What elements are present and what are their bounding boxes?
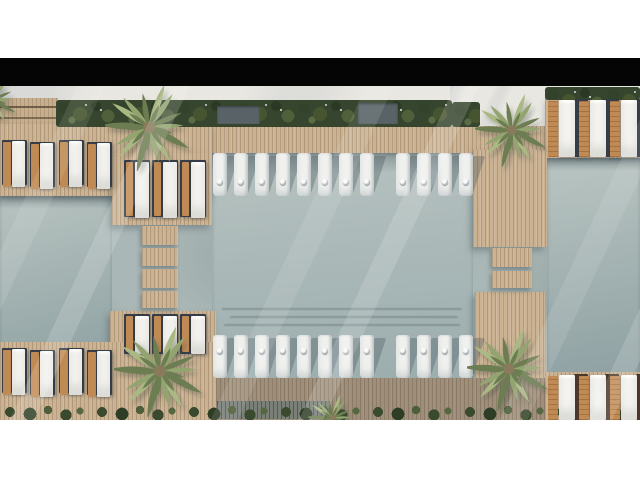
- drink-holder-ball: [421, 179, 427, 185]
- wood-chaise: [126, 316, 133, 352]
- cushion-chaise: [191, 316, 205, 354]
- in-pool-lounger: [396, 335, 410, 378]
- ripple-line: [224, 324, 460, 326]
- wood-chaise: [182, 162, 189, 216]
- walkway-segment: [492, 271, 532, 288]
- wood-chaise: [579, 101, 589, 157]
- drink-holder-ball: [259, 348, 265, 354]
- in-pool-lounger: [276, 153, 290, 196]
- cushion-chaise: [621, 375, 637, 420]
- drink-holder-ball: [343, 348, 349, 354]
- in-pool-lounger: [297, 335, 311, 378]
- in-pool-lounger: [213, 335, 227, 378]
- hedge-top-right: [545, 87, 640, 100]
- drink-holder-ball: [301, 348, 307, 354]
- cushion-chaise: [191, 162, 205, 218]
- cushion-chaise: [559, 375, 575, 420]
- cushion-chaise: [135, 162, 149, 218]
- bush-cluster-top: [452, 102, 480, 127]
- drink-holder-ball: [442, 348, 448, 354]
- drink-holder-ball: [322, 179, 328, 185]
- pool-render: [0, 86, 640, 420]
- wood-chaise: [126, 162, 133, 216]
- walkway-segment: [142, 269, 178, 288]
- wood-chaise: [579, 376, 589, 420]
- in-pool-lounger: [255, 153, 269, 196]
- in-pool-lounger: [360, 153, 374, 196]
- cushion-chaise: [69, 349, 82, 395]
- in-pool-lounger: [417, 335, 431, 378]
- drink-holder-ball: [442, 179, 448, 185]
- wood-chaise: [154, 316, 161, 352]
- wood-chaise: [88, 352, 96, 397]
- in-pool-lounger: [234, 335, 248, 378]
- drink-holder-ball: [259, 179, 265, 185]
- drink-holder-ball: [463, 348, 469, 354]
- cushion-chaise: [163, 316, 177, 354]
- wood-chaise: [60, 142, 68, 187]
- in-pool-lounger: [255, 335, 269, 378]
- cushion-chaise: [590, 100, 606, 157]
- drink-holder-ball: [217, 179, 223, 185]
- in-pool-lounger: [318, 153, 332, 196]
- walkway-segment: [142, 226, 178, 245]
- in-pool-lounger: [234, 153, 248, 196]
- drink-holder-ball: [463, 179, 469, 185]
- wood-chaise: [88, 144, 96, 189]
- drink-holder-ball: [400, 348, 406, 354]
- cushion-chaise: [12, 349, 25, 395]
- page-background: [0, 0, 640, 480]
- wood-chaise: [610, 101, 620, 157]
- in-pool-lounger: [459, 153, 473, 196]
- drink-holder-ball: [217, 348, 223, 354]
- pool-water-right: [547, 158, 640, 373]
- pool-water-left: [0, 196, 112, 343]
- ripple-line: [222, 308, 462, 310]
- in-pool-lounger: [438, 153, 452, 196]
- cushion-chaise: [97, 351, 110, 397]
- in-pool-lounger: [459, 335, 473, 378]
- wood-chaise: [154, 162, 161, 216]
- cushion-chaise: [621, 100, 637, 157]
- platform-right: [473, 150, 547, 247]
- cushion-chaise: [559, 100, 575, 157]
- wood-chaise: [3, 142, 11, 187]
- drink-holder-ball: [238, 179, 244, 185]
- drink-holder-ball: [364, 179, 370, 185]
- drink-holder-ball: [364, 348, 370, 354]
- deck-steps-top-left: [0, 98, 58, 126]
- wood-chaise: [31, 352, 39, 397]
- wood-chaise: [31, 144, 39, 189]
- in-pool-lounger: [297, 153, 311, 196]
- wood-chaise: [182, 316, 189, 352]
- in-pool-lounger: [417, 153, 431, 196]
- drink-holder-ball: [322, 348, 328, 354]
- in-pool-lounger: [213, 153, 227, 196]
- drink-holder-ball: [400, 179, 406, 185]
- wood-chaise: [548, 376, 558, 420]
- wood-chaise: [60, 350, 68, 395]
- cushion-chaise: [135, 316, 149, 354]
- wood-chaise: [610, 376, 620, 420]
- in-pool-lounger: [318, 335, 332, 378]
- planter-box-1: [217, 106, 260, 124]
- drink-holder-ball: [343, 179, 349, 185]
- in-pool-lounger: [396, 153, 410, 196]
- drink-holder-ball: [421, 348, 427, 354]
- deck-shadow-left: [0, 196, 112, 209]
- drink-holder-ball: [280, 179, 286, 185]
- wood-chaise: [548, 101, 558, 157]
- wood-chaise: [3, 350, 11, 395]
- drink-holder-ball: [301, 179, 307, 185]
- drink-holder-ball: [238, 348, 244, 354]
- cushion-chaise: [69, 141, 82, 187]
- letterbox-bar: [0, 58, 640, 86]
- in-pool-lounger: [339, 153, 353, 196]
- in-pool-lounger: [276, 335, 290, 378]
- cushion-chaise: [97, 143, 110, 189]
- deck-shadow-right: [547, 158, 640, 171]
- walkway-segment: [142, 248, 178, 266]
- cushion-chaise: [590, 375, 606, 420]
- drink-holder-ball: [280, 348, 286, 354]
- cushion-chaise: [40, 143, 53, 189]
- cushion-chaise: [12, 141, 25, 187]
- walkway-segment: [142, 291, 178, 308]
- in-pool-lounger: [438, 335, 452, 378]
- walkway-segment: [492, 248, 532, 267]
- in-pool-lounger: [360, 335, 374, 378]
- ripple-line: [230, 316, 458, 318]
- in-pool-lounger: [339, 335, 353, 378]
- pier-right: [475, 292, 545, 378]
- cushion-chaise: [163, 162, 177, 218]
- cushion-chaise: [40, 351, 53, 397]
- hedge-bottom: [0, 404, 640, 420]
- planter-box-2: [358, 103, 398, 124]
